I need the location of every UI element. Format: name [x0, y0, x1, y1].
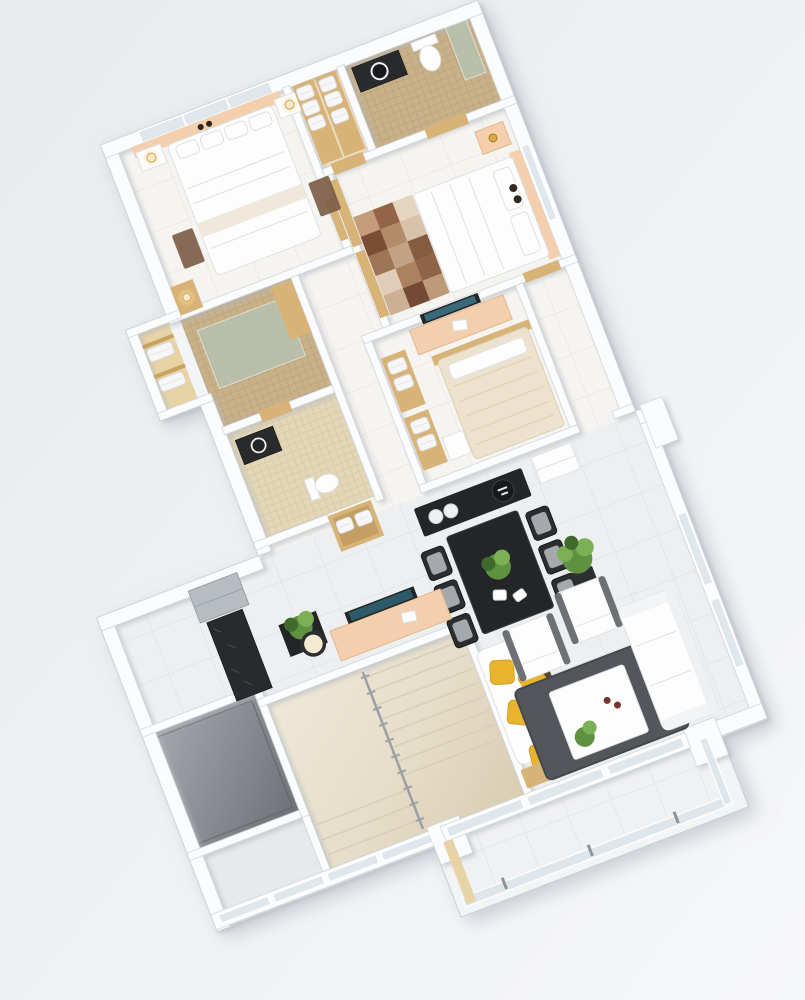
yellow-pillow — [489, 660, 514, 685]
decor-paper — [401, 611, 417, 623]
floor-plan-stage — [0, 0, 805, 1000]
plate — [493, 590, 506, 600]
floor-plan-render — [0, 0, 805, 1000]
decor-paper — [452, 319, 467, 331]
